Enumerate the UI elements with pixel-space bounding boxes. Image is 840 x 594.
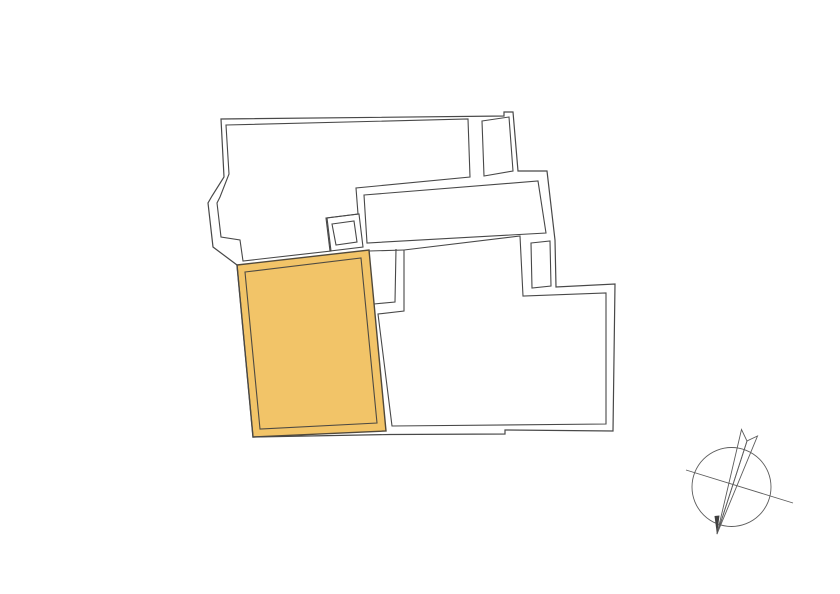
- room-lower-right: [378, 236, 606, 426]
- north-compass-icon: [686, 430, 793, 536]
- compass-cross-line: [686, 470, 793, 503]
- room-square-inner: [332, 221, 357, 245]
- wall-seg-stub-left: [374, 249, 396, 304]
- compass-needle-left-blade: [717, 430, 747, 535]
- highlight-room[interactable]: [237, 250, 386, 437]
- room-top-right: [482, 117, 513, 176]
- room-shaft: [531, 241, 551, 288]
- room-middle-band: [364, 181, 546, 243]
- compass-needle-right-blade: [717, 436, 758, 534]
- floor-plan-svg: [0, 0, 840, 594]
- room-square-outer: [326, 214, 363, 251]
- compass-circle: [692, 448, 771, 527]
- wall-seg-band-bottom-left: [369, 250, 404, 251]
- highlight-room-outline[interactable]: [237, 250, 386, 437]
- floor-plan-page: [0, 0, 840, 594]
